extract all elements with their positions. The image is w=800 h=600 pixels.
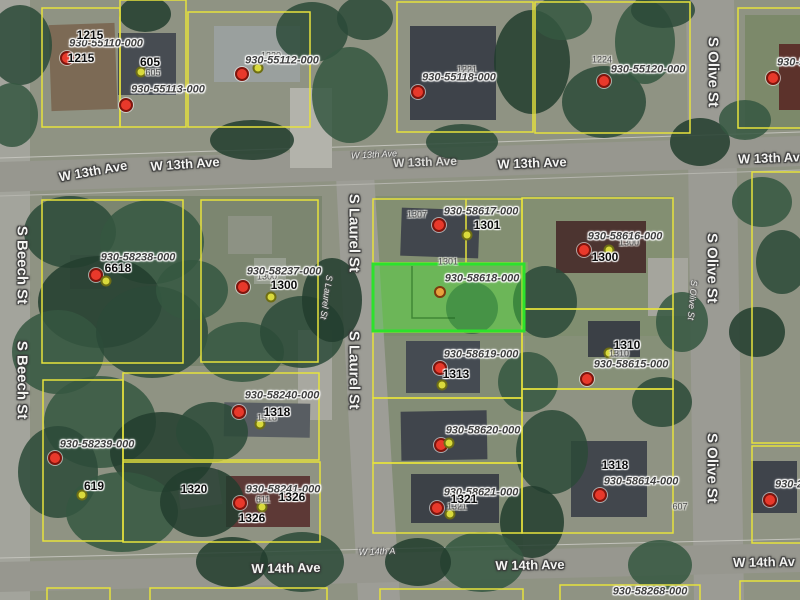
tree-canopy (719, 100, 771, 140)
building (556, 221, 646, 273)
building (254, 258, 286, 284)
tree-canopy (628, 540, 692, 590)
address-point-marker-yellow[interactable] (604, 245, 615, 256)
address-point-marker-yellow[interactable] (136, 67, 147, 78)
building (49, 23, 118, 111)
parcel-point-marker-red[interactable] (60, 51, 74, 65)
tree-canopy (498, 352, 558, 412)
tree-canopy (426, 124, 498, 160)
parcel-point-marker-red[interactable] (235, 67, 249, 81)
address-point-marker-yellow[interactable] (253, 63, 264, 74)
tree-canopy (0, 5, 52, 85)
address-point-marker-yellow[interactable] (77, 490, 88, 501)
parcel-point-marker-red[interactable] (48, 451, 62, 465)
tree-canopy (312, 47, 388, 143)
address-point-marker-yellow[interactable] (101, 276, 112, 287)
tree-canopy (729, 307, 785, 357)
parcel-point-marker-red[interactable] (433, 361, 447, 375)
selected-parcel-layer (373, 264, 524, 331)
building (779, 44, 800, 110)
parcel-point-marker-red[interactable] (119, 98, 133, 112)
tree-canopy (632, 377, 692, 427)
parcel-point-marker-red[interactable] (763, 493, 777, 507)
tree-canopy (732, 177, 792, 227)
address-point-marker-yellow[interactable] (462, 230, 473, 241)
building (401, 410, 488, 460)
address-point-marker-yellow[interactable] (255, 419, 266, 430)
building (410, 26, 496, 120)
tree-canopy (156, 260, 228, 320)
tree-canopy (756, 230, 800, 294)
tree-canopy (260, 532, 344, 592)
address-point-marker-yellow[interactable] (437, 380, 448, 391)
parcel-point-marker-red[interactable] (236, 280, 250, 294)
tree-canopy (196, 537, 268, 587)
tree-canopy (302, 258, 362, 342)
parcel-boundary-south[interactable] (740, 581, 800, 600)
parcel-point-marker-red[interactable] (232, 405, 246, 419)
basemap-imagery (0, 0, 800, 600)
parcel-point-marker-red[interactable] (593, 488, 607, 502)
address-point-marker-yellow[interactable] (444, 438, 455, 449)
selected-parcel-930-58618-000[interactable] (373, 264, 524, 331)
tree-canopy (160, 467, 244, 537)
parcel-point-marker-red[interactable] (411, 85, 425, 99)
address-point-marker-yellow[interactable] (604, 348, 615, 359)
map-viewport[interactable]: 1220 1221 1224 605 1307 1301 1300 1300 1… (0, 0, 800, 600)
address-point-marker-yellow[interactable] (266, 292, 277, 303)
parcel-point-marker-red[interactable] (597, 74, 611, 88)
tree-canopy (440, 532, 524, 592)
selected-parcel-point-marker[interactable] (434, 286, 446, 298)
parcel-point-marker-red[interactable] (580, 372, 594, 386)
tree-canopy (0, 83, 38, 147)
tree-canopy (119, 0, 171, 32)
tree-canopy (385, 538, 451, 586)
building (118, 33, 176, 95)
tree-canopy (210, 120, 294, 160)
building (228, 216, 272, 254)
parcel-point-marker-red[interactable] (233, 496, 247, 510)
parcel-boundary-south[interactable] (380, 589, 523, 600)
parcel-boundary-930-58268-000[interactable] (560, 585, 700, 600)
parcel-point-marker-red[interactable] (577, 243, 591, 257)
tree-canopy (66, 472, 178, 552)
address-point-marker-yellow[interactable] (257, 502, 268, 513)
address-point-marker-yellow[interactable] (445, 509, 456, 520)
parcel-point-marker-red[interactable] (432, 218, 446, 232)
parcel-point-marker-red[interactable] (430, 501, 444, 515)
tree-canopy (656, 292, 708, 352)
tree-canopy (516, 410, 588, 494)
parcel-point-marker-red[interactable] (766, 71, 780, 85)
